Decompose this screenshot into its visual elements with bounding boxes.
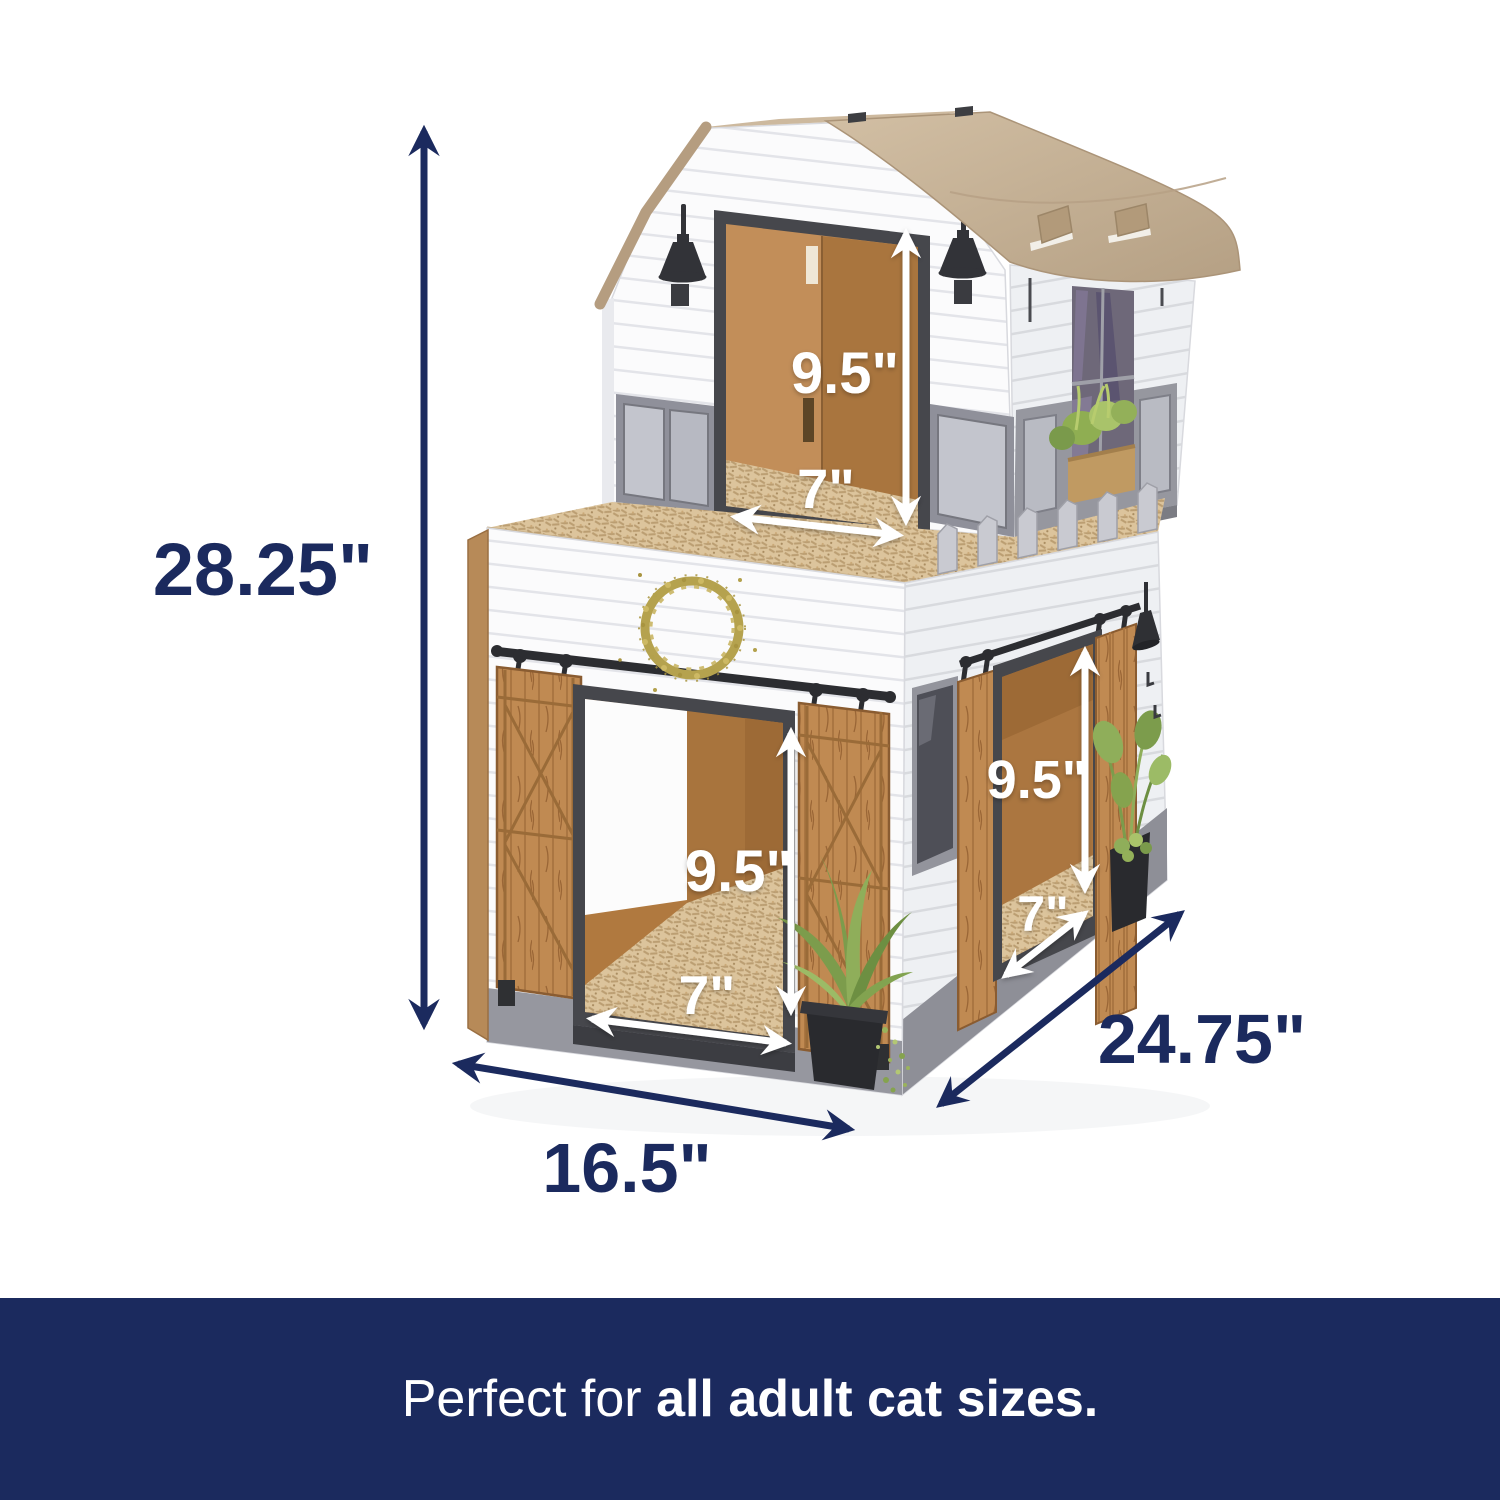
loft-wainscot-left <box>616 394 714 514</box>
loft-door-width-label: 7" <box>797 457 855 520</box>
base-width-label: 16.5" <box>542 1129 711 1207</box>
caption-banner: Perfect for all adult cat sizes. <box>0 1298 1500 1500</box>
front-door-height-label: 9.5" <box>685 839 793 904</box>
side-barn-door-left <box>958 670 996 1030</box>
side-door-width-label: 7" <box>1017 886 1069 942</box>
front-door-width-label: 7" <box>679 964 736 1026</box>
loft-wainscot-right <box>930 404 1014 537</box>
lower-side-window <box>912 676 958 876</box>
cat-house-dimension-illustration: 9.5" 7" 9.5" 7" 9.5" 7" 28.25" 16.5" 24.… <box>0 0 1500 1500</box>
caption-text-regular: Perfect for <box>402 1369 656 1429</box>
loft-door-height-label: 9.5" <box>791 341 899 406</box>
caption-text-bold: all adult cat sizes. <box>656 1369 1098 1429</box>
product-dimensions-image: 9.5" 7" 9.5" 7" 9.5" 7" 28.25" 16.5" 24.… <box>0 0 1500 1500</box>
front-barn-door-left <box>497 667 581 1006</box>
base-depth-label: 24.75" <box>1098 1000 1306 1078</box>
side-door-height-label: 9.5" <box>987 750 1088 810</box>
left-corner-panel <box>468 530 488 1040</box>
overall-height-label: 28.25" <box>153 528 373 611</box>
